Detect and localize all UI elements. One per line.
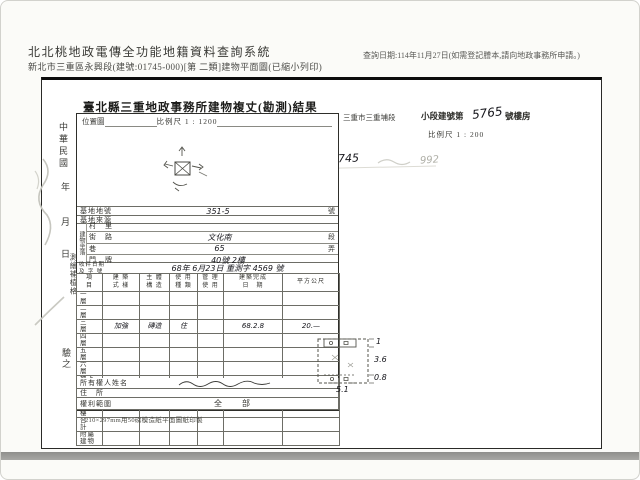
measurement-sketch-drawing <box>306 329 396 399</box>
floor-cell <box>198 320 224 334</box>
underline <box>105 118 157 127</box>
floor-cell <box>103 306 140 320</box>
street-suffix-label: 段 <box>321 232 338 242</box>
annotation-old-number-handwritten: 992 <box>420 154 440 166</box>
floor-row-label: 三 層 <box>77 320 103 334</box>
building-number-prefix-label: 小段建號第 <box>421 110 464 122</box>
floor-cell <box>283 292 340 306</box>
floor-cell <box>283 418 340 432</box>
rights-scope-row: 權利範圍 全 部 <box>76 398 339 410</box>
floor-column-header: 建 築式 樣 <box>103 274 140 292</box>
street-value-handwritten: 文化南 <box>118 232 321 243</box>
building-number-suffix-label: 號樓房 <box>505 110 531 122</box>
floor-cell <box>140 334 170 348</box>
floor-cell: 住 <box>170 320 198 334</box>
floor-row: 二 層 <box>77 306 340 320</box>
floor-column-header: 建築完成日 期 <box>224 274 283 292</box>
floor-cell: 磚造 <box>140 320 170 334</box>
location-map-scale: 比例尺 1 : 1200 <box>157 116 218 127</box>
paper-spec-footnote: 210×297mm用50磅模造紙平面圖紙印製 <box>85 414 203 424</box>
street-label: 街 路 <box>87 232 118 242</box>
floor-row: 附屬建物 <box>77 432 340 446</box>
village-label: 村 里 <box>87 221 118 231</box>
column-header-line1: 主 體 <box>140 275 169 283</box>
floor-cell <box>224 432 283 446</box>
system-title: 北北桃地政電傳全功能地籍資料查詢系統 <box>28 43 271 60</box>
column-header-line1: 管 理 <box>198 275 223 283</box>
floor-cell <box>170 306 198 320</box>
floor-row-label: 附屬建物 <box>77 432 103 446</box>
floor-row-label: 五 層 <box>77 348 103 362</box>
floor-cell <box>170 362 198 376</box>
floor-cell <box>198 432 224 446</box>
column-header-line1: 建 築 <box>103 275 139 283</box>
column-header-line1: 平方公尺 <box>283 279 339 287</box>
sketch-dim-right-3: 0.8 <box>374 373 387 382</box>
floor-cell: 加強 <box>103 320 140 334</box>
floor-row-label: 六 層 <box>77 362 103 376</box>
floor-cell <box>198 348 224 362</box>
floor-cell <box>198 292 224 306</box>
query-date-note: 查詢日期:114年11月27日(如需登記謄本,請向地政事務所申請。) <box>363 50 580 61</box>
measurement-sketch: 1 3.6 0.8 5.1 <box>306 329 396 399</box>
lane-suffix-label: 弄 <box>321 244 338 254</box>
column-header-line2: 日 期 <box>224 283 282 291</box>
floor-cell <box>283 306 340 320</box>
plan-scale-label: 比例尺 1 : 200 <box>428 129 484 140</box>
floor-cell <box>103 334 140 348</box>
floor-cell <box>283 432 340 446</box>
underline <box>217 118 332 127</box>
floor-cell <box>103 348 140 362</box>
sketch-dim-bottom: 5.1 <box>336 385 349 394</box>
floor-column-header: 管 理使 用 <box>198 274 224 292</box>
margin-seal-label: 驗之 <box>60 348 73 370</box>
floor-row: 五 層 <box>77 348 340 362</box>
floor-row: 三 層加強磚造住68.2.820.— <box>77 320 340 334</box>
field-row-lot: 基地地號 351-5 號 <box>77 206 338 215</box>
column-header-line2: 式 樣 <box>103 283 139 291</box>
floor-cell <box>140 306 170 320</box>
location-sketch <box>147 138 219 200</box>
floor-cell <box>140 348 170 362</box>
floor-row-label: 一 層 <box>77 292 103 306</box>
location-map-label: 位置圖 <box>77 116 105 127</box>
sketch-dim-right-2: 3.6 <box>374 355 387 364</box>
floor-row-label: 四 層 <box>77 334 103 348</box>
floor-row: 一 層 <box>77 292 340 306</box>
location-map-strip: 位置圖 比例尺 1 : 1200 <box>77 114 338 127</box>
floor-cell: 68.2.8 <box>224 320 283 334</box>
form-field-rows: 基地地號 351-5 號 基地來源 建物坐落 村 里 <box>77 206 338 274</box>
section-name-label: 三重市三重埔段 <box>343 112 396 123</box>
floor-cell <box>224 292 283 306</box>
floor-cell <box>103 362 140 376</box>
floor-column-header: 主 體構 造 <box>140 274 170 292</box>
column-header-line1: 項 <box>77 275 102 283</box>
pencil-note-squiggle <box>31 153 65 253</box>
column-header-line2: 構 造 <box>140 283 169 291</box>
lane-value-handwritten: 65 <box>118 244 321 253</box>
floor-cell <box>198 362 224 376</box>
bottom-divider-bar <box>1 452 640 460</box>
floor-cell <box>224 418 283 432</box>
signature-squiggle <box>175 379 295 388</box>
address-row-lane: 巷 65 弄 <box>87 243 338 254</box>
floor-column-header: 項目 <box>77 274 103 292</box>
floor-cell <box>224 306 283 320</box>
address-row-street: 街 路 文化南 段 <box>87 231 338 243</box>
floor-cell <box>103 432 140 446</box>
floor-cell <box>198 306 224 320</box>
floor-table-header-row: 項目建 築式 樣主 體構 造使 用種 類管 理使 用建築完成日 期平方公尺 <box>77 274 340 292</box>
floor-cell <box>224 348 283 362</box>
rights-scope-label: 權利範圍 <box>77 399 132 409</box>
floor-cell <box>224 362 283 376</box>
floor-row-label: 二 層 <box>77 306 103 320</box>
floor-cell <box>170 348 198 362</box>
floor-column-header: 平方公尺 <box>283 274 340 292</box>
floor-cell <box>140 432 170 446</box>
column-header-line1: 建築完成 <box>224 275 282 283</box>
rights-scope-value: 全 部 <box>132 398 338 409</box>
building-location-group-label: 建物坐落 <box>77 221 87 266</box>
floor-row: 四 層 <box>77 334 340 348</box>
floor-column-header: 使 用種 類 <box>170 274 198 292</box>
pencil-slash-mark <box>31 293 67 329</box>
residence-label: 住 所 <box>77 388 132 398</box>
field-group-address: 建物坐落 村 里 街 路 文化南 段 巷 65 <box>77 223 338 262</box>
sketch-dim-right-1: 1 <box>376 337 381 346</box>
floor-cell <box>140 292 170 306</box>
column-header-line2: 目 <box>77 283 102 291</box>
column-header-line2: 使 用 <box>198 283 223 291</box>
address-row-village: 村 里 <box>87 221 338 231</box>
floor-row: 六 層 <box>77 362 340 376</box>
floor-cell <box>170 292 198 306</box>
lot-number-value: 351-5 <box>115 207 321 216</box>
lane-label: 巷 <box>87 244 118 254</box>
residence-row: 住 所 <box>76 389 339 398</box>
floor-cell <box>170 334 198 348</box>
column-header-line1: 使 用 <box>170 275 197 283</box>
receipt-label-line1: 收件日期 <box>79 262 105 268</box>
lot-number-unit: 號 <box>321 206 338 216</box>
file-description-line: 新北市三重區永興段(建號:01745-000)[第 二類]建物平面圖(已縮小列印… <box>28 60 322 73</box>
column-header-line2: 種 類 <box>170 283 197 291</box>
floor-cell <box>170 432 198 446</box>
floor-cell <box>198 334 224 348</box>
floor-cell <box>140 362 170 376</box>
address-sub-rows: 村 里 街 路 文化南 段 巷 65 弄 <box>87 221 338 266</box>
query-system-page: 北北桃地政電傳全功能地籍資料查詢系統 新北市三重區永興段(建號:01745-00… <box>0 0 640 480</box>
floor-cell <box>224 334 283 348</box>
owner-name-label: 所有權人姓名 <box>77 378 132 388</box>
floor-cell <box>103 292 140 306</box>
